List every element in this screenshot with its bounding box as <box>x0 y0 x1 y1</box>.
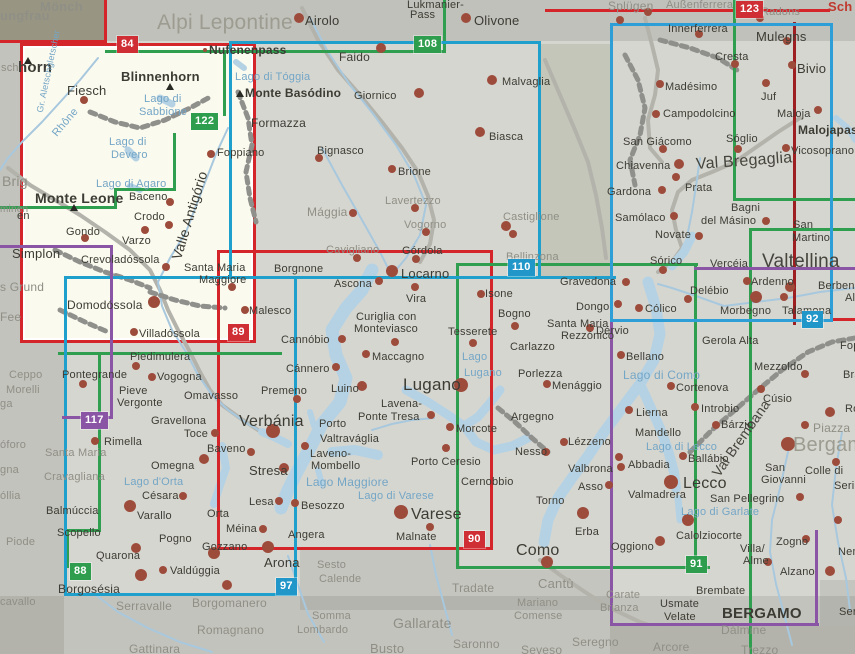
map-label: Lago di Garlate <box>681 507 759 518</box>
town-dot <box>511 322 519 330</box>
map-label: Mulegns <box>756 30 807 43</box>
map-label: Morelli <box>6 385 40 396</box>
map-label: Nembro <box>838 547 855 558</box>
map-label: Giovanni <box>761 475 806 486</box>
map-label: Malojapass <box>798 124 855 136</box>
map-label: Omegna <box>151 461 194 472</box>
map-label: Lago di Tóggia <box>235 72 310 83</box>
town-dot <box>442 444 450 452</box>
mountain-ridge <box>60 310 108 332</box>
map-label: Trezzo <box>741 644 778 654</box>
map-label: Nufenenpass <box>209 44 287 56</box>
map-label: Simplon <box>12 247 60 260</box>
map-label: Cannóbio <box>281 335 330 346</box>
town-dot <box>617 351 625 359</box>
map-label: Gerola Alta <box>702 336 759 347</box>
map-label: Lago di Como <box>623 369 700 381</box>
map-label: Luino <box>331 384 359 395</box>
town-dot <box>825 407 835 417</box>
map-label: Omavasso <box>184 391 238 402</box>
map-label: Fee <box>0 311 21 323</box>
town-dot <box>301 442 309 450</box>
sheet-badge-88[interactable]: 88 <box>70 563 91 580</box>
town-dot <box>414 88 424 98</box>
map-label: Campodolcino <box>663 109 736 120</box>
map-label: Biasca <box>489 132 523 143</box>
map-label: Tradate <box>452 582 494 594</box>
map-label: Lavertezzo <box>385 196 441 207</box>
mountain-peak-icon <box>166 83 174 90</box>
map-label: Vira <box>406 294 426 305</box>
map-label: Calende <box>319 574 361 585</box>
map-label: Scopello <box>57 528 101 539</box>
town-dot <box>222 580 232 590</box>
map-label: Lago di Lecco <box>646 442 717 453</box>
map-label: del Másino <box>701 216 756 227</box>
map-label: Martino <box>792 233 830 244</box>
town-dot <box>560 438 568 446</box>
sheet-boundary-line <box>294 276 297 596</box>
map-label: Premeno <box>261 386 307 397</box>
map-label: Dongo <box>576 302 609 313</box>
map-label: Blinnenhorn <box>121 70 200 83</box>
town-dot <box>475 127 485 137</box>
town-dot <box>135 569 147 581</box>
map-label: Valtraváglia <box>320 434 379 445</box>
map-label: Ardenno <box>751 277 794 288</box>
map-label: Madésimo <box>665 82 717 93</box>
sheet-badge-90[interactable]: 90 <box>464 531 485 548</box>
town-dot <box>427 411 435 419</box>
map-label: Lierna <box>636 408 668 419</box>
map-label: Borgosésia <box>58 583 120 595</box>
map-label: Sesto <box>317 560 346 571</box>
town-dot <box>614 300 622 308</box>
map-label: Seregno <box>572 636 619 648</box>
map-label: Brembate <box>696 586 745 597</box>
map-label: Ponte Tresa <box>358 412 420 423</box>
town-dot <box>659 266 667 274</box>
map-label: Baceno <box>129 192 168 203</box>
sheet-badge-108[interactable]: 108 <box>414 36 441 53</box>
map-label: Villa/ <box>740 544 765 555</box>
map-label: Morbegno <box>720 306 771 317</box>
map-label: Vicosoprano <box>791 146 854 157</box>
map-label: San Pellegrino <box>710 494 784 505</box>
town-dot <box>259 525 267 533</box>
sheet-badge-123[interactable]: 123 <box>736 1 763 18</box>
map-label: Juf <box>761 92 776 103</box>
map-label: Lago di Varese <box>358 491 434 502</box>
map-label: Castiglione <box>503 212 560 223</box>
town-dot <box>162 263 170 271</box>
map-label: Introbio <box>701 404 739 415</box>
sheet-boundary-line <box>733 0 736 201</box>
town-dot <box>362 350 370 358</box>
map-label: Gardona <box>607 187 651 198</box>
map-label: Monte Leone <box>35 191 124 205</box>
map-label: Sabbione <box>139 107 187 118</box>
sheet-boundary-line <box>64 276 67 596</box>
sheet-badge-92[interactable]: 92 <box>802 311 823 328</box>
town-dot <box>695 232 703 240</box>
map-label: Oggiono <box>611 542 654 553</box>
map-label: Valmadrera <box>628 490 686 501</box>
map-label: Curiglia con <box>356 312 416 323</box>
map-label: Faido <box>339 51 370 63</box>
map-label: Romagnano <box>197 624 264 636</box>
town-dot <box>203 48 207 52</box>
town-dot <box>165 221 173 229</box>
map-label: Lago Maggiore <box>306 476 389 488</box>
map-label: Seveso <box>521 644 562 654</box>
map-label: Sórico <box>650 256 682 267</box>
sheet-boundary-line <box>223 52 226 116</box>
map-label: San Giácomo <box>623 137 692 148</box>
sheet-boundary-line <box>830 318 855 321</box>
map-label: gna <box>0 465 19 476</box>
map-label: Como <box>516 543 559 559</box>
map-label: Domodóssola <box>67 299 143 311</box>
map-label: Maccagno <box>372 352 424 363</box>
map-label: Saronno <box>453 638 500 650</box>
sheet-boundary-line <box>830 23 833 322</box>
map-label: Malnate <box>396 532 437 543</box>
map-label: Monteviasco <box>354 324 418 335</box>
sheet-badge-117[interactable]: 117 <box>81 412 108 429</box>
map-label: ungfrau <box>0 9 50 22</box>
map-label: Carate <box>606 590 640 601</box>
map-label: cavallo <box>0 597 36 608</box>
town-dot <box>655 536 665 546</box>
map-label: Malvaglia <box>502 77 550 88</box>
map-label: Fiesch <box>67 84 107 97</box>
sheet-boundary-line <box>173 133 176 191</box>
sheet-badge-122[interactable]: 122 <box>191 113 218 130</box>
town-dot <box>670 212 678 220</box>
sheet-boundary-line <box>104 0 107 43</box>
map-label: Maloja <box>777 109 811 120</box>
town-dot <box>780 293 788 301</box>
town-dot <box>211 429 219 437</box>
town-dot <box>338 335 346 343</box>
map-label: Menággio <box>552 381 602 392</box>
town-dot <box>275 497 283 505</box>
sheet-badge-89[interactable]: 89 <box>228 324 249 341</box>
map-label: Gravedona <box>560 277 616 288</box>
town-dot <box>461 13 471 23</box>
map-label: Lesa <box>249 497 274 508</box>
map-label: Dálmine <box>721 624 766 636</box>
map-label: Vercéia <box>710 259 748 270</box>
map-label: Bogno <box>498 309 531 320</box>
map-label: Velate <box>664 612 696 623</box>
town-dot <box>477 290 485 298</box>
map-label: Balmúccia <box>46 506 99 517</box>
map-label: Branzi <box>843 370 855 381</box>
map-label: Gondo <box>66 227 100 238</box>
town-dot <box>148 296 160 308</box>
sheet-badge-91[interactable]: 91 <box>686 556 707 573</box>
town-dot <box>691 403 699 411</box>
map-label: en <box>17 211 30 222</box>
map-label: Quarona <box>96 551 140 562</box>
town-dot <box>834 516 842 524</box>
town-dot <box>635 304 643 312</box>
map-label: Varzo <box>122 236 151 247</box>
sheet-boundary-line <box>456 263 459 569</box>
map-label: Außenferrera <box>666 0 733 11</box>
map-label: Vergonte <box>117 398 163 409</box>
map-label: Varese <box>411 507 462 523</box>
map-label: Ascona <box>334 279 372 290</box>
town-dot <box>788 61 796 69</box>
sheet-badge-84[interactable]: 84 <box>117 36 138 53</box>
town-dot <box>199 454 209 464</box>
map-label: Varallo <box>137 511 172 522</box>
map-label: Berbenno <box>818 281 855 292</box>
map-label: San <box>765 463 785 474</box>
map-label: Calolziocorte <box>676 531 742 542</box>
town-dot <box>148 373 156 381</box>
map-label: Colle di <box>805 466 843 477</box>
sheet-boundary-line <box>610 319 833 322</box>
map-label: Vogorno <box>404 220 446 231</box>
map-label: Vogogna <box>157 372 202 383</box>
sheet-boundary-line <box>694 263 697 569</box>
map-label: Arcore <box>653 641 690 653</box>
map-label: Valdúggia <box>170 566 220 577</box>
map-label: Serravalle <box>116 600 172 612</box>
map-label: Lago di <box>109 137 147 148</box>
map-label: Lecco <box>683 476 727 492</box>
lake <box>310 412 314 426</box>
map-label: Mandello <box>635 428 681 439</box>
map-label: Górdola <box>402 246 443 257</box>
sheet-boundary-line <box>110 245 113 419</box>
map-label: Pogno <box>159 534 192 545</box>
town-dot <box>426 523 434 531</box>
town-dot <box>132 362 140 370</box>
map-label: Radons <box>761 7 800 18</box>
town-dot <box>375 277 383 285</box>
map-label: Seriate <box>839 607 855 618</box>
map-label: Angera <box>288 530 325 541</box>
map-label: Lago di Agaro <box>96 179 167 190</box>
map-label: Cernobbio <box>461 477 514 488</box>
map-label: Piode <box>6 537 35 548</box>
town-dot <box>658 186 666 194</box>
town-dot <box>814 106 822 114</box>
map-label: Brig <box>2 174 28 188</box>
town-dot <box>652 110 660 118</box>
map-label: Bárzio <box>721 420 753 431</box>
map-label: Foppiano <box>217 148 264 159</box>
map-label: Dérvio <box>596 326 629 337</box>
map-label: Piedimulera <box>130 352 190 363</box>
town-dot <box>762 217 770 225</box>
lake <box>236 62 244 68</box>
map-label: Porto Ceresio <box>411 457 481 468</box>
town-dot <box>294 13 304 23</box>
town-dot <box>391 338 399 346</box>
map-label: Mággia <box>307 206 348 218</box>
map-label: Malesco <box>249 306 291 317</box>
map-label: Argegno <box>511 412 554 423</box>
map-label: Torno <box>536 496 565 507</box>
map-label: Lago di <box>144 94 182 105</box>
town-dot <box>124 500 136 512</box>
map-label: Villadóssola <box>139 329 200 340</box>
map-label: San <box>793 220 813 231</box>
map-label: Erba <box>575 527 599 538</box>
town-dot <box>801 421 809 429</box>
town-dot <box>159 566 167 574</box>
map-label: Mariano <box>517 598 558 609</box>
map-label: Cánnero <box>286 364 330 375</box>
sheet-boundary-line <box>456 566 710 569</box>
map-label: Sóglio <box>726 134 758 145</box>
map-label: Santa Maria <box>184 263 246 274</box>
map-label: Cortenova <box>676 383 729 394</box>
town-dot <box>79 380 87 388</box>
map-label: Devero <box>111 150 148 161</box>
map-label: Lavena- <box>381 399 422 410</box>
map-label: Bignasco <box>317 146 364 157</box>
town-dot <box>656 80 664 88</box>
map-label: Crodo <box>134 212 165 223</box>
map-canvas[interactable]: MönchungfrauschhornGr. AletschgletscherR… <box>0 0 855 654</box>
map-label: óforo <box>0 440 26 451</box>
map-label: Pass <box>410 10 435 21</box>
map-label: Cravagliana <box>44 472 105 483</box>
town-dot <box>679 452 687 460</box>
map-label: Foppolo <box>840 341 855 352</box>
map-label: Locarno <box>401 267 449 280</box>
town-dot <box>712 421 720 429</box>
map-label: Bergama <box>793 435 855 455</box>
map-label: Zogno <box>776 537 808 548</box>
town-dot <box>674 159 684 169</box>
sheet-boundary-line <box>229 41 232 278</box>
town-dot <box>672 173 680 181</box>
map-label: Novate <box>655 230 691 241</box>
town-dot <box>577 507 589 519</box>
town-dot <box>796 493 804 501</box>
town-dot <box>605 481 613 489</box>
map-label: óllia <box>0 491 21 502</box>
sheet-boundary-line <box>610 623 819 626</box>
map-label: Gozzano <box>202 542 247 553</box>
town-dot <box>617 463 625 471</box>
map-label: Lézzeno <box>568 437 611 448</box>
map-label: Pieve <box>119 386 148 397</box>
map-label: Rimella <box>104 437 142 448</box>
town-dot <box>543 380 551 388</box>
map-label: Valtellina <box>762 252 840 271</box>
sheet-boundary-line <box>217 547 493 550</box>
town-dot <box>386 265 398 277</box>
sheet-badge-97[interactable]: 97 <box>276 578 297 595</box>
lake <box>678 498 680 520</box>
map-label: Orta <box>207 509 229 520</box>
map-label: Carlazzo <box>510 342 555 353</box>
town-dot <box>750 291 762 303</box>
map-label: Ballábio <box>688 454 729 465</box>
map-label: Usmate <box>660 599 699 610</box>
sheet-badge-110[interactable]: 110 <box>508 259 535 276</box>
map-label: Crevoladóssola <box>81 255 160 266</box>
town-dot <box>207 150 215 158</box>
map-label: Busto <box>370 642 404 654</box>
map-label: Lago <box>462 352 487 363</box>
map-label: Mezzoldo <box>754 362 803 373</box>
map-label: Alzano <box>780 567 815 578</box>
town-dot <box>376 43 386 53</box>
sheet-boundary-line <box>733 198 855 201</box>
town-dot <box>446 423 454 431</box>
map-label: Sch <box>828 0 852 13</box>
town-dot <box>625 406 633 414</box>
town-dot <box>394 505 408 519</box>
map-label: Cresta <box>715 52 749 63</box>
town-dot <box>825 566 835 576</box>
town-dot <box>757 385 765 393</box>
map-label: sch <box>1 63 19 74</box>
town-dot <box>130 328 138 336</box>
map-label: Césara <box>142 491 179 502</box>
map-label: Al <box>845 293 855 304</box>
town-dot <box>291 499 299 507</box>
town-dot <box>349 209 357 217</box>
town-dot <box>241 306 249 314</box>
map-label: Arona <box>264 556 300 569</box>
town-dot <box>262 541 274 553</box>
map-label: Lugano <box>403 376 461 393</box>
map-label: Valbrona <box>568 464 613 475</box>
map-label: Brione <box>398 167 431 178</box>
map-label: Somma <box>312 611 351 622</box>
map-label: Samólaco <box>615 213 666 224</box>
map-label: Méina <box>226 524 257 535</box>
map-label: Porto <box>319 419 346 430</box>
map-label: Olivone <box>474 14 519 27</box>
map-label: Cavigliano <box>326 245 379 256</box>
town-dot <box>509 230 517 238</box>
map-label: Ceppo <box>9 370 42 381</box>
map-label: Innerferrera <box>668 24 728 35</box>
map-label: Cólico <box>645 304 677 315</box>
town-dot <box>91 437 99 445</box>
map-label: Stresa <box>249 464 288 477</box>
map-label: Abbadia <box>628 460 670 471</box>
map-label: Roncobello <box>845 404 855 415</box>
map-label: Isone <box>485 289 513 300</box>
town-dot <box>411 283 419 291</box>
town-dot <box>332 363 340 371</box>
town-dot <box>469 339 477 347</box>
map-label: Laveno- <box>310 449 351 460</box>
map-label: Alme <box>743 556 769 567</box>
map-label: Mombello <box>311 461 360 472</box>
town-dot <box>141 226 149 234</box>
sheet-boundary-line <box>815 530 818 625</box>
map-label: Borgnone <box>274 264 323 275</box>
map-label: Gattinara <box>129 643 180 654</box>
town-dot <box>667 382 675 390</box>
map-label: Chiavenna <box>616 161 670 172</box>
town-dot <box>616 16 624 24</box>
